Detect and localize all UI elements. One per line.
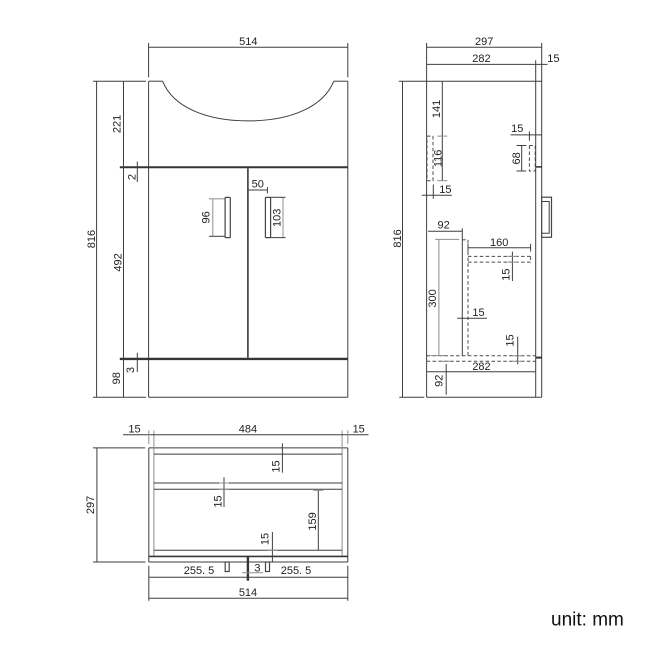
svg-text:484: 484 <box>239 423 257 435</box>
svg-text:68: 68 <box>511 152 523 164</box>
svg-text:15: 15 <box>505 334 517 346</box>
svg-text:15: 15 <box>439 184 451 196</box>
svg-text:96: 96 <box>201 211 213 223</box>
svg-text:282: 282 <box>472 53 490 65</box>
svg-text:15: 15 <box>270 460 282 472</box>
svg-text:514: 514 <box>239 587 257 599</box>
svg-text:816: 816 <box>86 230 98 248</box>
svg-text:15: 15 <box>547 53 559 65</box>
svg-text:15: 15 <box>501 268 513 280</box>
svg-text:141: 141 <box>431 100 443 118</box>
svg-text:50: 50 <box>252 179 264 191</box>
svg-text:92: 92 <box>437 219 449 231</box>
svg-text:15: 15 <box>212 495 224 507</box>
svg-text:159: 159 <box>307 512 319 530</box>
svg-text:300: 300 <box>427 289 439 307</box>
svg-text:unit: mm: unit: mm <box>551 610 624 631</box>
svg-text:15: 15 <box>128 423 140 435</box>
svg-text:255. 5: 255. 5 <box>184 565 215 577</box>
svg-text:514: 514 <box>239 36 257 48</box>
svg-text:160: 160 <box>490 237 508 249</box>
svg-text:282: 282 <box>472 361 490 373</box>
svg-text:15: 15 <box>259 533 271 545</box>
svg-text:98: 98 <box>111 372 123 384</box>
svg-text:297: 297 <box>475 36 493 48</box>
svg-text:15: 15 <box>472 307 484 319</box>
svg-text:103: 103 <box>272 209 284 227</box>
svg-text:816: 816 <box>392 229 404 247</box>
svg-text:116: 116 <box>433 150 445 168</box>
svg-text:3: 3 <box>125 367 137 373</box>
svg-text:492: 492 <box>113 253 125 271</box>
svg-text:2: 2 <box>127 174 139 180</box>
svg-text:221: 221 <box>112 115 124 133</box>
svg-text:255. 5: 255. 5 <box>281 565 312 577</box>
svg-text:3: 3 <box>254 562 260 574</box>
svg-text:15: 15 <box>511 123 523 135</box>
svg-text:92: 92 <box>434 375 446 387</box>
svg-text:15: 15 <box>353 423 365 435</box>
svg-text:297: 297 <box>85 496 97 514</box>
